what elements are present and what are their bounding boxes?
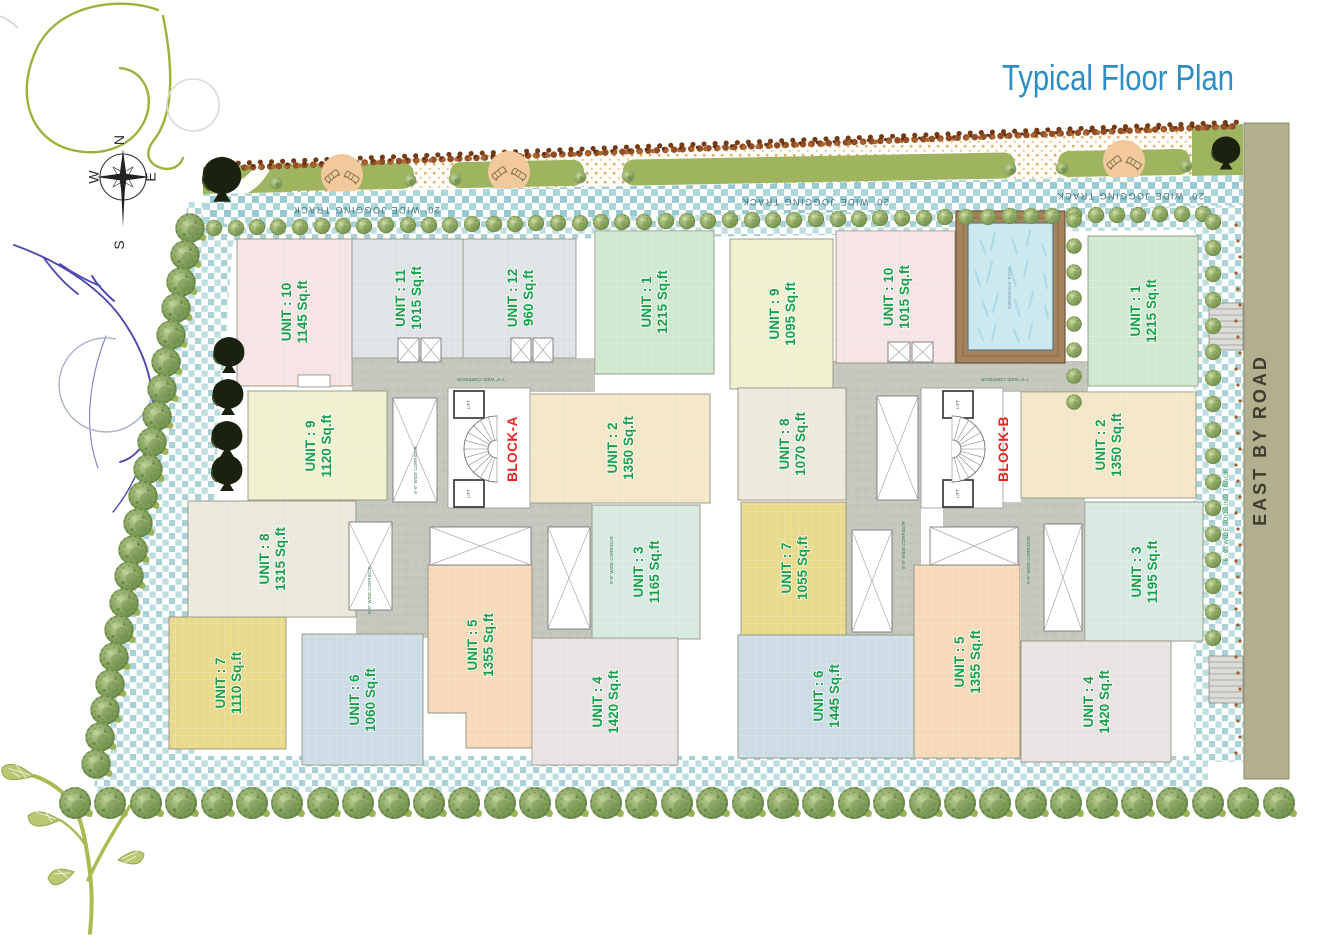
svg-text:UNIT : 21350 Sq.ft: UNIT : 21350 Sq.ft	[605, 416, 636, 480]
svg-text:LIFT: LIFT	[466, 489, 471, 499]
svg-text:S: S	[111, 240, 127, 249]
svg-text:6'-0" WIDE JOGGING TRACK: 6'-0" WIDE JOGGING TRACK	[1224, 469, 1230, 562]
svg-text:UNIT : 31165 Sq.ft: UNIT : 31165 Sq.ft	[631, 540, 662, 604]
svg-text:8'-0" WIDE CORRIDOR: 8'-0" WIDE CORRIDOR	[901, 520, 906, 568]
svg-text:N: N	[111, 135, 127, 145]
svg-text:UNIT : 81315 Sq.ft: UNIT : 81315 Sq.ft	[257, 527, 288, 591]
svg-text:LIFT: LIFT	[466, 400, 471, 410]
svg-text:UNIT : 51355 Sq.ft: UNIT : 51355 Sq.ft	[952, 630, 983, 694]
svg-text:UNIT : 11215 Sq.ft: UNIT : 11215 Sq.ft	[1128, 279, 1159, 343]
svg-text:UNIT : 12960 Sq.ft: UNIT : 12960 Sq.ft	[505, 269, 536, 328]
svg-text:20' WIDE JOGGING TRACK: 20' WIDE JOGGING TRACK	[741, 197, 889, 207]
svg-text:UNIT : 101015 Sq.ft: UNIT : 101015 Sq.ft	[881, 265, 912, 329]
svg-text:UNIT : 111015 Sq.ft: UNIT : 111015 Sq.ft	[393, 266, 424, 330]
svg-text:UNIT : 21350 Sq.ft: UNIT : 21350 Sq.ft	[1093, 413, 1124, 477]
svg-text:BLOCK-B: BLOCK-B	[996, 416, 1011, 482]
svg-text:UNIT : 91120 Sq.ft: UNIT : 91120 Sq.ft	[303, 414, 334, 478]
svg-text:20' WIDE JOGGING TRACK: 20' WIDE JOGGING TRACK	[292, 205, 440, 215]
svg-text:UNIT : 11215 Sq.ft: UNIT : 11215 Sq.ft	[639, 270, 670, 334]
svg-text:BLOCK-A: BLOCK-A	[505, 416, 520, 482]
svg-text:8'-0" WIDE CORRIDOR: 8'-0" WIDE CORRIDOR	[413, 445, 418, 493]
svg-text:UNIT : 51355 Sq.ft: UNIT : 51355 Sq.ft	[465, 613, 496, 677]
svg-text:UNIT : 71110 Sq.ft: UNIT : 71110 Sq.ft	[213, 651, 244, 714]
svg-text:UNIT : 71055 Sq.ft: UNIT : 71055 Sq.ft	[779, 536, 810, 600]
svg-text:UNIT : 41420 Sq.ft: UNIT : 41420 Sq.ft	[590, 670, 621, 734]
svg-text:UNIT : 31195 Sq.ft: UNIT : 31195 Sq.ft	[1129, 540, 1160, 604]
svg-text:UNIT : 61445 Sq.ft: UNIT : 61445 Sq.ft	[811, 664, 842, 728]
svg-text:UNIT : 61060 Sq.ft: UNIT : 61060 Sq.ft	[347, 668, 378, 732]
svg-text:EAST BY ROAD: EAST BY ROAD	[1250, 354, 1270, 526]
svg-text:8'-0" WIDE CORRIDOR: 8'-0" WIDE CORRIDOR	[609, 535, 614, 583]
svg-text:SWIMMING POOL: SWIMMING POOL	[1007, 265, 1012, 309]
svg-text:E: E	[143, 172, 159, 181]
svg-text:UNIT : 91095 Sq.ft: UNIT : 91095 Sq.ft	[767, 282, 798, 346]
svg-text:UNIT : 41420 Sq.ft: UNIT : 41420 Sq.ft	[1081, 670, 1112, 734]
svg-text:UNIT : 81070 Sq.ft: UNIT : 81070 Sq.ft	[777, 412, 808, 476]
svg-text:LIFT: LIFT	[955, 489, 960, 499]
svg-text:Typical Floor Plan: Typical Floor Plan	[1002, 57, 1234, 98]
svg-text:8'-0" WIDE CORRIDOR: 8'-0" WIDE CORRIDOR	[1026, 535, 1031, 583]
svg-text:UNIT : 101145 Sq.ft: UNIT : 101145 Sq.ft	[279, 280, 310, 344]
svg-text:8'-0" WIDE CORRIDOR: 8'-0" WIDE CORRIDOR	[367, 565, 372, 613]
svg-text:20' WIDE JOGGING TRACK: 20' WIDE JOGGING TRACK	[1056, 191, 1204, 201]
svg-text:LIFT: LIFT	[955, 400, 960, 410]
svg-text:W: W	[86, 170, 102, 184]
svg-text:7'-0" WIDE CORRIDOR: 7'-0" WIDE CORRIDOR	[456, 377, 504, 382]
svg-text:7'-0" WIDE CORRIDOR: 7'-0" WIDE CORRIDOR	[980, 377, 1028, 382]
